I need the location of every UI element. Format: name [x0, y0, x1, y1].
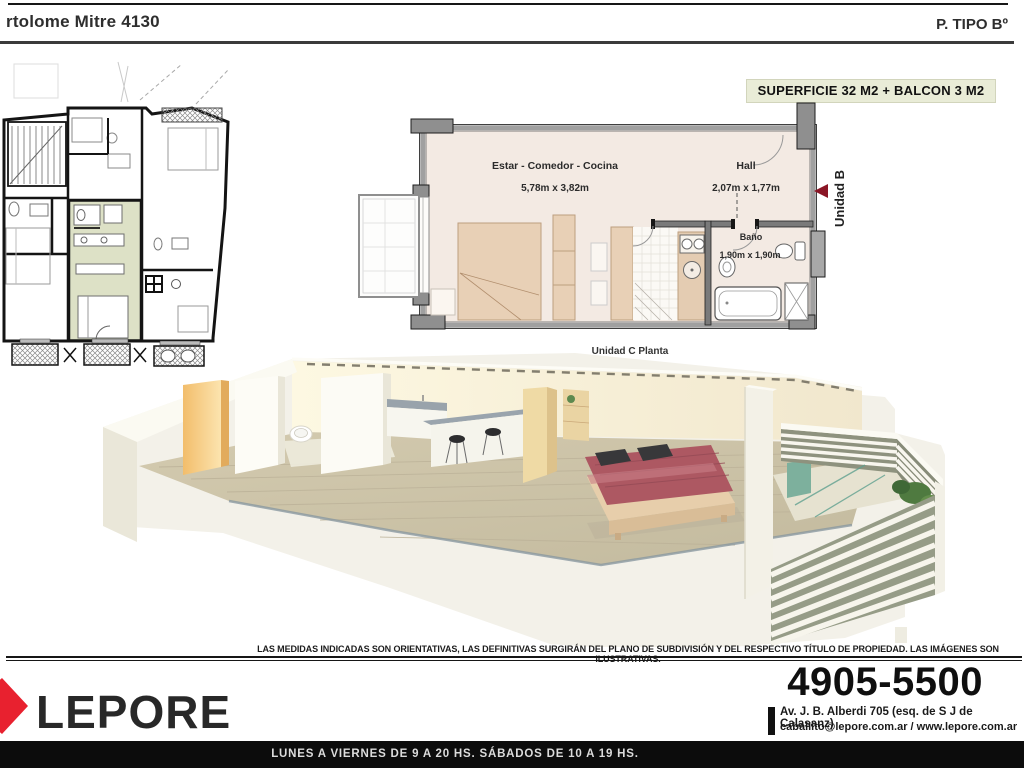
left-wall [103, 427, 137, 542]
unit-plan-drawing [353, 93, 827, 341]
street-address-title: rtolome Mitre 4130 [6, 12, 160, 32]
wardrobe [183, 380, 229, 475]
plan-type-label: P. TIPO Bº [936, 16, 1008, 33]
unit-b-arrow-icon [814, 184, 828, 198]
bedroom-right-wall [745, 385, 777, 599]
header-rule [0, 41, 1014, 44]
room-dims-living: 5,78m x 3,82m [460, 183, 650, 194]
render-3d [95, 345, 945, 647]
room-label-living: Estar - Comedor - Cocina [460, 161, 650, 173]
tall-cabinet [523, 387, 557, 483]
room-label-hall: Hall [700, 161, 792, 173]
roof-hints [14, 62, 228, 104]
hours-text: LUNES A VIERNES DE 9 A 20 HS. SÁBADOS DE… [130, 748, 780, 760]
phone-number: 4905-5500 [787, 662, 983, 702]
balcony [359, 195, 419, 297]
kitchen [633, 227, 705, 320]
room-dims-hall: 2,07m x 1,77m [700, 183, 792, 194]
brand-name: LEPORE [36, 689, 231, 735]
unit-b-marker: Unidad B [832, 148, 850, 248]
highlighted-unit [70, 201, 141, 340]
contact-line: caballito@lepore.com.ar / www.lepore.com… [780, 721, 1017, 733]
shelf-unit [563, 389, 589, 441]
room-label-bath: Baño [716, 233, 786, 243]
building-plan-drawing [0, 58, 232, 370]
room-dims-bath: 1,90m x 1,90m [702, 251, 798, 261]
address-bar-icon [768, 707, 775, 735]
top-rule [8, 3, 1008, 5]
lepore-logo-icon [0, 674, 32, 740]
flyer-page: rtolome Mitre 4130 P. TIPO Bº SUPERFICIE… [0, 0, 1024, 768]
